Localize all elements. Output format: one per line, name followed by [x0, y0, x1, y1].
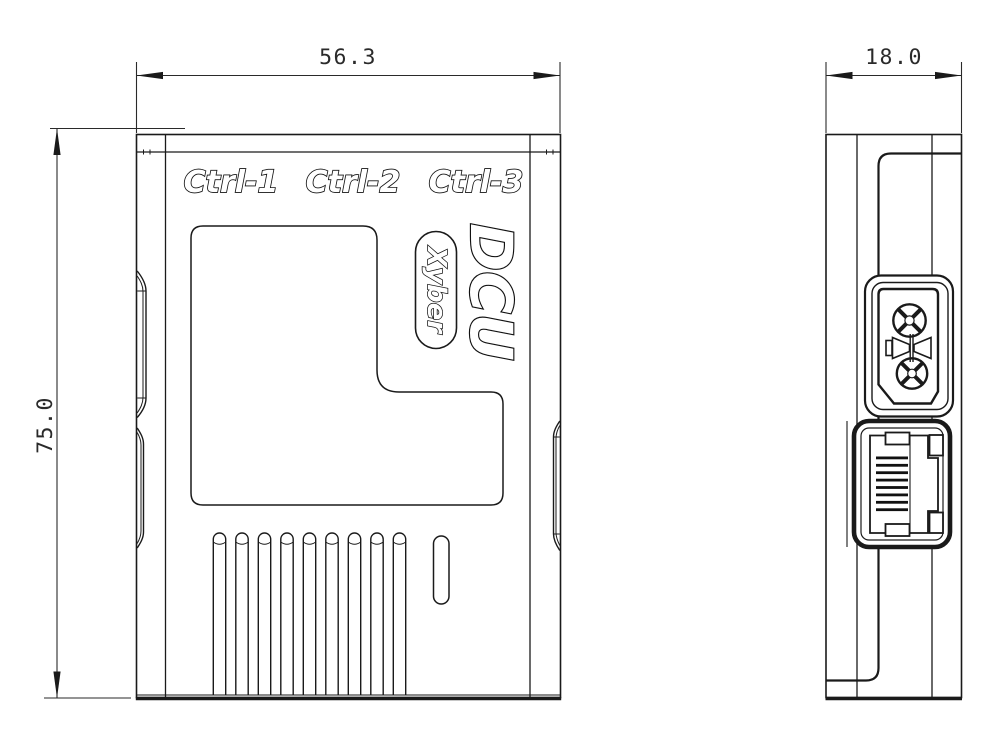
port-label-3: Ctrl-3 [429, 165, 524, 200]
technical-drawing: Ctrl-1 Ctrl-2 Ctrl-3 DCU Xyber [0, 0, 1000, 737]
power-pin-top [893, 304, 925, 336]
port-label-2: Ctrl-2 [306, 165, 401, 200]
side-view [826, 135, 963, 699]
side-depth-value: 18.0 [865, 45, 923, 70]
xyber-badge-text: Xyber [421, 245, 451, 335]
ethernet-corner-slot-bottom [930, 513, 944, 534]
extension-lines [826, 62, 962, 133]
dimension-arrow-top [53, 129, 60, 156]
dimension-arrow-left [826, 72, 853, 79]
dcu-logo-text: DCU [457, 223, 525, 361]
technical-drawing-page: Ctrl-1 Ctrl-2 Ctrl-3 DCU Xyber [0, 0, 1000, 737]
front-height-value: 75.0 [33, 396, 58, 454]
power-pin-bottom [897, 358, 927, 388]
dimension-arrow-right [534, 72, 561, 79]
port-label-1: Ctrl-1 [184, 165, 279, 200]
front-width-dimension: 56.3 [137, 45, 561, 133]
power-connector [865, 276, 953, 417]
front-width-value: 56.3 [319, 45, 377, 70]
ethernet-corner-slot-top [930, 435, 944, 456]
extension-lines [137, 62, 561, 133]
dimension-arrow-left [137, 72, 164, 79]
ethernet-bottom-tab [886, 524, 910, 536]
ethernet-top-tab [886, 433, 910, 445]
ethernet-port [847, 421, 950, 547]
xyber-badge: Xyber [416, 232, 457, 349]
front-view: Ctrl-1 Ctrl-2 Ctrl-3 DCU Xyber [136, 135, 561, 699]
ethernet-jack-opening [870, 436, 938, 534]
dimension-arrow-bottom [53, 672, 60, 699]
side-depth-dimension: 18.0 [826, 45, 962, 133]
dimension-arrow-right [935, 72, 962, 79]
